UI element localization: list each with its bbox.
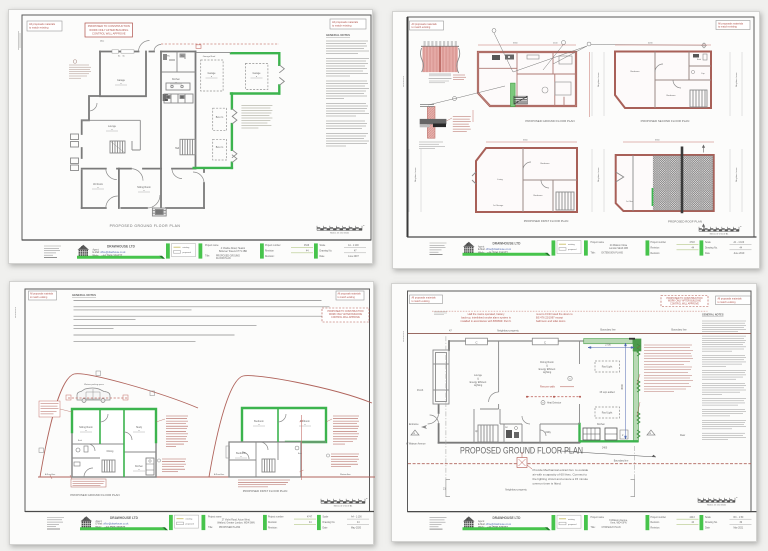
svg-text:proposed: proposed [186, 524, 194, 526]
svg-text:Box rm: Box rm [216, 116, 224, 119]
svg-text:Title:: Title: [205, 255, 210, 258]
svg-text:2400: 2400 [602, 448, 608, 450]
svg-text:Dining: Dining [107, 450, 114, 453]
svg-text:A Road line: A Road line [214, 473, 225, 476]
svg-text:44: 44 [306, 250, 309, 252]
svg-text:Drawing No.: Drawing No. [320, 249, 333, 252]
svg-text:existing: existing [183, 246, 190, 249]
svg-text:EXTENSION PLANS: EXTENSION PLANS [602, 252, 624, 255]
svg-text:tbc tbc: tbc tbc [118, 55, 125, 58]
svg-text:Drawing No.: Drawing No. [705, 246, 718, 249]
svg-text:15 sqm added: 15 sqm added [599, 391, 615, 394]
svg-text:Neighbour house: Neighbour house [597, 73, 600, 87]
svg-text:Bedroom: Bedroom [667, 94, 676, 97]
svg-text:Agent:: Agent: [96, 520, 103, 523]
svg-text:FLOOR PLAN: FLOOR PLAN [216, 257, 231, 260]
svg-text:Roof Light: Roof Light [602, 412, 613, 415]
svg-text:London SE13 4FB: London SE13 4FB [609, 248, 628, 250]
svg-text:Hall the mains operated, batte: Hall the mains operated, battery [468, 312, 505, 316]
svg-text:Sitting Room: Sitting Room [79, 426, 93, 429]
svg-text:Neighbour property: Neighbour property [497, 329, 519, 332]
svg-text:49: 49 [740, 522, 743, 524]
svg-text:Watson parking space: Watson parking space [84, 383, 105, 386]
svg-text:47: 47 [449, 329, 452, 332]
svg-text:Agent:: Agent: [478, 246, 485, 249]
svg-text:Bedroom: Bedroom [631, 70, 640, 73]
svg-text:Bath: Bath [697, 58, 701, 61]
svg-text:PROPOSED FIRST FLOOR PLAN: PROPOSED FIRST FLOOR PLAN [524, 219, 569, 223]
svg-text:WORK ONLY AFTER BUILDING: WORK ONLY AFTER BUILDING [668, 300, 702, 303]
svg-text:W Watson Avenue: W Watson Avenue [406, 443, 426, 446]
svg-text:Watson Ave: Watson Ave [340, 473, 351, 476]
svg-text:Bedroom: Bedroom [534, 194, 543, 197]
svg-text:Agent:: Agent: [93, 249, 100, 252]
svg-text:RC - 1:50: RC - 1:50 [734, 517, 745, 519]
svg-text:Neighbour house: Neighbour house [735, 73, 738, 87]
svg-text:Date: Date [705, 252, 711, 255]
svg-text:DRAWHOUSE LTD: DRAWHOUSE LTD [110, 516, 139, 520]
svg-text:Revision:: Revision: [265, 256, 275, 258]
svg-text:Sty: Sty [181, 55, 184, 58]
svg-text:Revision:: Revision: [651, 253, 661, 255]
svg-text:to match existing: to match existing [718, 26, 737, 29]
svg-text:GENERAL NOTES: GENERAL NOTES [72, 293, 96, 297]
svg-text:PROPOSED GROUND FLOOR PLAN: PROPOSED GROUND FLOOR PLAN [460, 446, 583, 457]
svg-text:Garage Roof: Garage Roof [203, 55, 216, 58]
svg-text:47: 47 [354, 250, 357, 252]
svg-text:proposed: proposed [183, 252, 191, 254]
svg-text:to match existing: to match existing [30, 296, 48, 299]
svg-text:to match existing: to match existing [29, 25, 49, 29]
svg-text:Project name: Project name [591, 241, 605, 244]
svg-text:Revision: Revision [651, 247, 661, 249]
svg-text:Neighbour property: Neighbour property [505, 489, 527, 492]
svg-text:A: A [414, 432, 416, 435]
svg-text:PROPOSED TO CONSTRUCTION: PROPOSED TO CONSTRUCTION [88, 24, 130, 28]
svg-text:Remove walls: Remove walls [540, 386, 556, 389]
svg-text:A1 - 1:100: A1 - 1:100 [348, 244, 359, 247]
svg-text:Rear: Rear [680, 434, 685, 437]
svg-text:Heat Detector: Heat Detector [547, 402, 561, 405]
svg-text:installed in accordance with B: installed in accordance with BS5839: Par… [461, 319, 512, 323]
svg-text:m: m [736, 497, 738, 499]
svg-text:Utility: Utility [545, 431, 552, 434]
svg-text:air with a capacity of 60 l/se: air with a capacity of 60 l/sec. Connect… [533, 473, 588, 477]
svg-text:PROPOSED GROUND FLOOR PLAN: PROPOSED GROUND FLOOR PLAN [525, 119, 574, 123]
svg-text:4718: 4718 [690, 242, 696, 244]
svg-text:Bath: Bath [78, 439, 82, 442]
svg-text:Date: Date [323, 527, 329, 530]
svg-text:Sitting Room: Sitting Room [137, 186, 151, 189]
svg-text:Living: Living [497, 179, 503, 181]
svg-text:Kent, WD4 5FN: Kent, WD4 5FN [610, 521, 626, 524]
svg-text:Roof Light: Roof Light [602, 366, 613, 369]
svg-text:2: 2 [622, 434, 624, 437]
svg-text:44: 44 [309, 522, 312, 524]
svg-text:24 Watson Close: 24 Watson Close [610, 244, 628, 247]
svg-text:DRAWHOUSE LTD: DRAWHOUSE LTD [493, 516, 522, 520]
svg-text:proposed: proposed [568, 249, 576, 251]
svg-text:Title:: Title: [591, 252, 596, 255]
svg-text:Drawing No.: Drawing No. [705, 521, 718, 524]
svg-text:PROPOSED ROOF PLAN: PROPOSED ROOF PLAN [668, 220, 702, 224]
svg-text:May 2020: May 2020 [351, 528, 362, 530]
svg-text:Watford, Greater London, WD4 5: Watford, Greater London, WD4 5WN [217, 521, 255, 524]
svg-text:Metres @ 1:50 @ A1: Metres @ 1:50 @ A1 [334, 505, 354, 508]
svg-text:Neighbour house: Neighbour house [414, 168, 417, 182]
svg-text:PROPOSED PLANS: PROPOSED PLANS [219, 526, 241, 529]
svg-text:PROPOSED GROUND FLOOR PLAN: PROPOSED GROUND FLOOR PLAN [70, 493, 119, 497]
svg-text:Neighbour house: Neighbour house [735, 168, 738, 182]
svg-text:4500: 4500 [620, 384, 624, 390]
svg-text:Scale: Scale [323, 517, 329, 519]
svg-text:1st Storage: 1st Storage [493, 204, 504, 207]
svg-text:GENERAL NOTES: GENERAL NOTES [702, 314, 724, 317]
svg-text:31/03/2021: 31/03/2021 [403, 330, 405, 342]
svg-text:Revision: Revision [265, 250, 275, 252]
svg-text:AV Room: AV Room [93, 183, 103, 186]
svg-text:A: A [650, 432, 652, 435]
svg-text:44: 44 [740, 247, 743, 249]
svg-text:(tbc): (tbc) [100, 40, 104, 43]
svg-text:CHATEAUX PLAN: CHATEAUX PLAN [602, 526, 621, 529]
svg-text:⌀: ⌀ [111, 128, 113, 131]
svg-text:Revision: Revision [268, 522, 278, 524]
svg-text:Project number: Project number [651, 241, 667, 244]
svg-text:to match existing: to match existing [412, 300, 431, 303]
svg-text:bathroom and toilet doors: bathroom and toilet doors [536, 319, 566, 323]
svg-text:Bolsover Towers KT71 4BD: Bolsover Towers KT71 4BD [219, 250, 247, 253]
svg-text:Boundary line: Boundary line [671, 329, 687, 332]
svg-text:31/03/2021: 31/03/2021 [15, 306, 17, 318]
svg-text:Project name: Project name [205, 244, 219, 247]
svg-text:PROPOSED TO CONSTRUCTION: PROPOSED TO CONSTRUCTION [667, 298, 703, 300]
svg-text:3560: 3560 [655, 140, 660, 142]
svg-text:Title:: Title: [208, 526, 213, 529]
svg-text:All proposals materials: All proposals materials [30, 293, 54, 296]
svg-text:All proposals materials: All proposals materials [332, 20, 359, 24]
svg-text:Lighting: Lighting [543, 371, 552, 374]
svg-text:BS 476 22/1997 except: BS 476 22/1997 except [536, 316, 563, 320]
svg-text:Lighting: Lighting [474, 384, 483, 387]
svg-text:Study: Study [136, 426, 143, 429]
svg-text:4230: 4230 [648, 43, 653, 45]
svg-text:Bedroom: Bedroom [541, 162, 550, 165]
svg-text:⌀: ⌀ [97, 186, 99, 189]
svg-text:27 Violet Road, Acton West,: 27 Violet Road, Acton West, [222, 519, 251, 522]
svg-text:existing: existing [568, 243, 575, 246]
svg-text:existing: existing [568, 518, 575, 521]
svg-text:Date: Date [705, 527, 711, 530]
svg-text:Metres @ 1:50 @ A1: Metres @ 1:50 @ A1 [710, 233, 730, 236]
svg-text:All proposals materials: All proposals materials [338, 293, 362, 296]
svg-text:Metres @ 1:50 @ A1: Metres @ 1:50 @ A1 [330, 232, 350, 235]
svg-text:overrun timer is fitted.: overrun timer is fitted. [533, 482, 562, 486]
svg-text:Box rm: Box rm [216, 146, 224, 149]
svg-text:44: 44 [357, 522, 360, 524]
svg-text:Kitchen: Kitchen [597, 423, 606, 426]
svg-text:m: m [740, 226, 742, 228]
svg-text:Garage: Garage [117, 79, 126, 82]
svg-text:Garage: Garage [253, 72, 262, 75]
svg-text:Scale: Scale [705, 242, 711, 244]
svg-text:4 Chalice Road, Heaton: 4 Chalice Road, Heaton [221, 247, 246, 250]
svg-text:9 Watson Avenue,: 9 Watson Avenue, [609, 519, 628, 522]
svg-text:Revision:: Revision: [651, 528, 661, 530]
svg-text:PROPOSED SECOND FLOOR PLAN: PROPOSED SECOND FLOOR PLAN [641, 119, 690, 123]
svg-text:to match existing: to match existing [338, 296, 356, 299]
svg-text:PROPOSED GROUND FLOOR PLAN: PROPOSED GROUND FLOOR PLAN [110, 224, 181, 228]
svg-text:to match existing: to match existing [718, 301, 737, 304]
svg-text:A1 - 1:100: A1 - 1:100 [734, 241, 745, 244]
svg-text:PROPOSED TO CONSTRUCTION: PROPOSED TO CONSTRUCTION [328, 311, 364, 313]
svg-text:Date: Date [320, 255, 326, 258]
svg-text:Project number: Project number [268, 516, 284, 519]
svg-text:Revision:: Revision: [268, 528, 278, 530]
svg-text:Entrance: Entrance [409, 423, 419, 426]
svg-text:WC: WC [167, 56, 171, 58]
svg-text:proposed: proposed [568, 524, 576, 526]
svg-text:3560: 3560 [523, 140, 528, 142]
svg-text:⌀: ⌀ [120, 82, 122, 85]
svg-text:Bedroom: Bedroom [254, 420, 264, 423]
svg-text:Title:: Title: [591, 526, 596, 529]
svg-text:the lighting circuit and ensur: the lighting circuit and ensure a 15 min… [533, 477, 589, 481]
svg-text:Porch: Porch [417, 389, 424, 392]
svg-text:⌀: ⌀ [143, 189, 145, 192]
svg-text:must to FC33 rated fire doors: must to FC33 rated fire doors to [536, 312, 573, 316]
svg-text:Project name: Project name [591, 516, 605, 519]
svg-text:Project number: Project number [651, 516, 667, 519]
svg-text:3560: 3560 [513, 43, 518, 45]
svg-text:Scale: Scale [320, 245, 326, 247]
svg-text:A Road line: A Road line [45, 473, 56, 476]
svg-text:⌀: ⌀ [211, 75, 213, 78]
svg-text:June 2019: June 2019 [734, 253, 745, 255]
svg-text:4546: 4546 [304, 245, 310, 247]
svg-text:CONTROL WILL APPROVE: CONTROL WILL APPROVE [670, 302, 699, 305]
svg-text:DRAWHOUSE LTD: DRAWHOUSE LTD [107, 244, 136, 248]
svg-text:Kitchen: Kitchen [135, 465, 144, 468]
svg-text:All proposals materials: All proposals materials [29, 22, 56, 26]
svg-text:PROPOSED FIRST FLOOR PLAN: PROPOSED FIRST FLOOR PLAN [243, 489, 288, 493]
svg-text:Project name: Project name [208, 516, 222, 519]
svg-text:44: 44 [692, 522, 695, 524]
svg-text:WC: WC [505, 427, 509, 429]
svg-text:WORK ONLY AFTER BUILDING: WORK ONLY AFTER BUILDING [89, 28, 128, 32]
svg-text:Boundary line: Boundary line [600, 329, 616, 332]
svg-text:to match existing: to match existing [332, 23, 352, 27]
svg-text:Neighbour house: Neighbour house [597, 168, 600, 182]
svg-text:DRAWHOUSE LTD: DRAWHOUSE LTD [493, 241, 522, 245]
svg-text:1st Stor: 1st Stor [626, 200, 633, 203]
svg-text:4443: 4443 [690, 517, 696, 519]
svg-text:GENERAL NOTES: GENERAL NOTES [326, 33, 350, 37]
svg-text:31/03/2021: 31/03/2021 [403, 75, 405, 87]
svg-text:WORK ONLY AFTER BUILDING: WORK ONLY AFTER BUILDING [329, 313, 363, 316]
svg-text:Hall: Hall [175, 147, 180, 150]
svg-text:2700: 2700 [605, 343, 611, 347]
svg-text:Bedroom: Bedroom [236, 452, 246, 455]
svg-text:m: m [363, 225, 365, 227]
svg-text:Provide Mechanical extract fan: Provide Mechanical extract fan to outsid… [533, 468, 589, 472]
svg-text:⌀: ⌀ [256, 75, 258, 78]
svg-text:Kitchen: Kitchen [172, 78, 181, 81]
svg-text:Agent:: Agent: [478, 520, 485, 523]
svg-text:m: m [366, 498, 368, 500]
svg-text:Metres @ 1:50 @ A1: Metres @ 1:50 @ A1 [707, 504, 727, 507]
svg-text:June 2007: June 2007 [348, 256, 359, 258]
svg-text:Project number: Project number [265, 244, 281, 247]
svg-text:A4 - 1:100: A4 - 1:100 [351, 516, 362, 519]
svg-text:Drawing No.: Drawing No. [323, 521, 336, 524]
svg-text:Mar 2021: Mar 2021 [734, 527, 744, 530]
svg-text:Revision: Revision [651, 522, 661, 524]
svg-text:Garage: Garage [208, 72, 217, 75]
svg-text:CONTROL WILL APPROVE: CONTROL WILL APPROVE [331, 316, 360, 319]
svg-text:2140: 2140 [553, 43, 558, 45]
svg-text:Lounge: Lounge [108, 125, 117, 128]
svg-text:44: 44 [692, 247, 695, 249]
svg-text:CONTROL WILL APPROVE: CONTROL WILL APPROVE [92, 31, 126, 35]
svg-text:back-up, interlinked smoke ala: back-up, interlinked smoke alarm system … [461, 316, 511, 320]
svg-text:Scale: Scale [705, 517, 711, 519]
svg-text:existing: existing [186, 518, 193, 521]
svg-text:Boundary line: Boundary line [614, 459, 629, 462]
svg-text:4747: 4747 [307, 517, 313, 519]
svg-text:to match existing: to match existing [412, 26, 431, 29]
